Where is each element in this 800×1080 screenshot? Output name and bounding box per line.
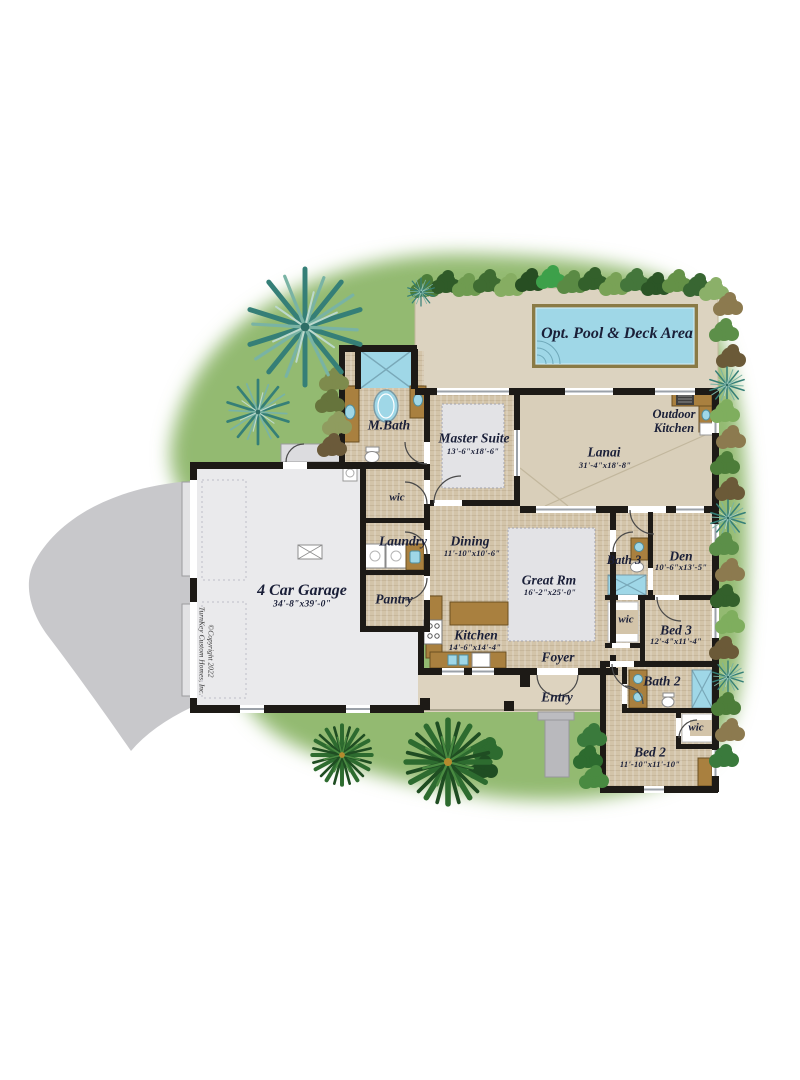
pantry-label: Pantry bbox=[375, 592, 413, 606]
bath2-label: Bath 2 bbox=[643, 674, 680, 688]
floor-plan-page: Opt. Pool & Deck Area Outdoor Kitchen La… bbox=[0, 0, 800, 1080]
dining-dims: 11'-10"x10'-6" bbox=[444, 549, 500, 558]
master-suite-label: Master Suite bbox=[439, 431, 510, 445]
bed2-dims: 11'-10"x11'-10" bbox=[620, 760, 680, 769]
den-dims: 10'-6"x13'-5" bbox=[655, 563, 707, 572]
master-suite-dims: 13'-6"x18'-6" bbox=[447, 447, 499, 456]
copyright-line1: ©Copyright 2022 bbox=[206, 607, 215, 696]
bed3-dims: 12'-4"x11'-4" bbox=[650, 637, 702, 646]
driveway bbox=[29, 481, 192, 751]
master-wic-label: wic bbox=[389, 493, 404, 504]
kitchen-label: Kitchen bbox=[454, 628, 498, 642]
garage-label: 4 Car Garage bbox=[257, 583, 347, 599]
great-room-label: Great Rm bbox=[522, 573, 576, 587]
entry-label: Entry bbox=[541, 690, 573, 704]
lanai-label: Lanai bbox=[587, 445, 620, 459]
bed2-label: Bed 2 bbox=[634, 745, 666, 759]
great-room-dims: 16'-2"x25'-0" bbox=[524, 588, 576, 597]
copyright-line2: TurnKey Custom Homes, Inc. bbox=[197, 607, 206, 696]
garage-dims: 34'-8"x39'-0" bbox=[273, 600, 331, 610]
outdoor-kitchen-label-line1: Outdoor bbox=[652, 408, 695, 421]
copyright-notice: ©Copyright 2022 TurnKey Custom Homes, In… bbox=[197, 607, 216, 696]
den-label: Den bbox=[669, 549, 692, 563]
outdoor-kitchen-label-line2: Kitchen bbox=[654, 422, 694, 435]
bed3-wic-label: wic bbox=[618, 615, 633, 626]
kitchen-dims: 14'-6"x14'-4" bbox=[449, 643, 501, 652]
pool-deck-label: Opt. Pool & Deck Area bbox=[541, 326, 693, 342]
bath3-label: Bath 3 bbox=[607, 554, 641, 567]
dining-label: Dining bbox=[450, 534, 489, 548]
master-bath-label: M.Bath bbox=[368, 418, 410, 432]
laundry-label: Laundry bbox=[379, 534, 427, 548]
bed2-wic-label: wic bbox=[688, 723, 703, 734]
bed3-label: Bed 3 bbox=[660, 623, 692, 637]
foyer-label: Foyer bbox=[542, 650, 575, 664]
lanai-dims: 31'-4"x18'-8" bbox=[579, 461, 631, 470]
